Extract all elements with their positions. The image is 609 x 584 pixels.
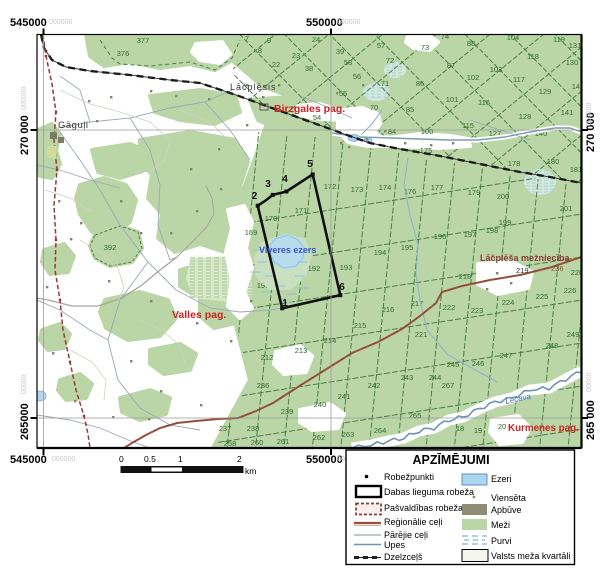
svg-text:8: 8 — [258, 46, 262, 55]
svg-text:377: 377 — [137, 36, 150, 45]
svg-text:Lāčplēsis: Lāčplēsis — [230, 82, 277, 92]
svg-text:216: 216 — [382, 305, 395, 314]
svg-text:71: 71 — [381, 79, 389, 88]
svg-text:241: 241 — [338, 392, 351, 401]
svg-text:Pārējie ceļi: Pārējie ceļi — [384, 530, 428, 540]
svg-text:7: 7 — [245, 34, 249, 43]
svg-text:130: 130 — [566, 58, 579, 67]
svg-text:242: 242 — [368, 381, 381, 390]
svg-text:195: 195 — [401, 243, 414, 252]
svg-text:58: 58 — [344, 58, 352, 67]
svg-text:545000: 545000 — [10, 17, 47, 29]
svg-text:245: 245 — [447, 360, 460, 369]
svg-text:1: 1 — [282, 298, 288, 309]
svg-text:Upes: Upes — [384, 540, 406, 550]
svg-text:Viveres ezers: Viveres ezers — [259, 245, 316, 255]
svg-text:Purvi: Purvi — [491, 536, 512, 546]
svg-text:km: km — [245, 466, 256, 476]
svg-text:177: 177 — [431, 183, 444, 192]
svg-text:100: 100 — [421, 127, 434, 136]
svg-text:180: 180 — [547, 157, 560, 166]
svg-text:115: 115 — [462, 121, 474, 130]
svg-text:545000: 545000 — [10, 454, 47, 466]
svg-text:117: 117 — [513, 75, 525, 84]
svg-text:201: 201 — [560, 204, 573, 213]
svg-text:173: 173 — [351, 185, 364, 194]
svg-text:4: 4 — [282, 174, 288, 185]
svg-text:270 000: 270 000 — [19, 115, 31, 155]
svg-text:000000: 000000 — [21, 87, 28, 110]
svg-text:131: 131 — [569, 41, 582, 50]
svg-text:86: 86 — [416, 79, 424, 88]
svg-text:39: 39 — [336, 47, 344, 56]
svg-text:260: 260 — [251, 438, 264, 447]
svg-text:247: 247 — [500, 351, 513, 360]
svg-text:192: 192 — [308, 264, 321, 273]
svg-text:170: 170 — [265, 214, 278, 223]
svg-text:102: 102 — [467, 73, 480, 82]
svg-text:199: 199 — [499, 218, 512, 227]
svg-text:9: 9 — [267, 36, 271, 45]
svg-text:3: 3 — [265, 179, 271, 190]
svg-text:265: 265 — [409, 411, 422, 420]
svg-text:1: 1 — [178, 454, 183, 464]
svg-text:240: 240 — [314, 400, 327, 409]
svg-text:Ezeri: Ezeri — [491, 474, 512, 484]
svg-text:261: 261 — [277, 437, 290, 446]
svg-text:196: 196 — [434, 232, 447, 241]
svg-text:103: 103 — [490, 65, 503, 74]
svg-text:Dzelzceļš: Dzelzceļš — [384, 552, 423, 562]
svg-text:236: 236 — [551, 264, 564, 273]
svg-text:226: 226 — [564, 286, 577, 295]
svg-text:239: 239 — [281, 407, 294, 416]
svg-text:72: 72 — [386, 56, 394, 65]
svg-text:172: 172 — [324, 182, 337, 191]
svg-text:Robežpunkti: Robežpunkti — [384, 472, 434, 482]
svg-text:Birzgales pag.: Birzgales pag. — [274, 103, 345, 115]
svg-text:258: 258 — [224, 439, 237, 448]
svg-text:Lāčplēša mežniecība: Lāčplēša mežniecība — [480, 253, 571, 263]
svg-text:376: 376 — [117, 49, 130, 58]
svg-text:000000: 000000 — [49, 19, 72, 26]
svg-text:6: 6 — [339, 282, 345, 293]
svg-text:Valsts meža kvartāli: Valsts meža kvartāli — [491, 551, 570, 561]
svg-text:246: 246 — [472, 359, 485, 368]
svg-text:APZĪMĒJUMI: APZĪMĒJUMI — [412, 453, 489, 467]
svg-text:212: 212 — [261, 353, 274, 362]
svg-text:19: 19 — [474, 426, 482, 435]
svg-text:24: 24 — [312, 35, 320, 44]
svg-text:Reģionālie ceļi: Reģionālie ceļi — [384, 517, 443, 527]
svg-text:214: 214 — [324, 336, 337, 345]
svg-text:171: 171 — [295, 206, 308, 215]
svg-text:23: 23 — [292, 51, 300, 60]
svg-text:221: 221 — [415, 330, 428, 339]
svg-text:56: 56 — [353, 72, 361, 81]
svg-text:265 000: 265 000 — [585, 400, 597, 440]
svg-text:219: 219 — [516, 266, 529, 275]
svg-text:Kurmenes pag.: Kurmenes pag. — [508, 423, 579, 434]
svg-text:267: 267 — [442, 381, 455, 390]
svg-text:141: 141 — [561, 108, 574, 117]
svg-text:197: 197 — [464, 230, 477, 239]
svg-text:198: 198 — [486, 226, 499, 235]
svg-text:000000: 000000 — [52, 456, 75, 463]
svg-text:237: 237 — [219, 424, 232, 433]
svg-text:73: 73 — [421, 43, 429, 52]
svg-text:116: 116 — [478, 98, 490, 107]
svg-text:2: 2 — [252, 191, 258, 202]
svg-text:00000: 00000 — [21, 374, 28, 394]
svg-text:236: 236 — [257, 381, 270, 390]
svg-text:Pašvaldības robeža: Pašvaldības robeža — [384, 503, 463, 513]
svg-text:88: 88 — [467, 39, 475, 48]
svg-text:264: 264 — [374, 426, 387, 435]
svg-text:225: 225 — [536, 292, 549, 301]
svg-text:178: 178 — [508, 159, 521, 168]
svg-text:200: 200 — [497, 192, 510, 201]
svg-text:129: 129 — [539, 87, 552, 96]
svg-text:000000: 000000 — [337, 19, 360, 26]
svg-text:218: 218 — [459, 272, 472, 281]
svg-text:244: 244 — [429, 373, 442, 382]
svg-text:238: 238 — [247, 424, 260, 433]
svg-text:Meži: Meži — [491, 520, 510, 530]
svg-text:00000: 00000 — [586, 372, 593, 392]
svg-text:87: 87 — [447, 61, 455, 70]
svg-text:224: 224 — [502, 298, 515, 307]
svg-text:213: 213 — [295, 346, 308, 355]
svg-text:243: 243 — [401, 373, 414, 382]
svg-text:Gāguļi: Gāguļi — [58, 120, 88, 131]
svg-text:248: 248 — [546, 341, 559, 350]
svg-text:38: 38 — [305, 64, 313, 73]
svg-text:193: 193 — [340, 263, 353, 272]
svg-text:118: 118 — [527, 52, 539, 61]
svg-text:70: 70 — [370, 103, 378, 112]
svg-text:0: 0 — [119, 454, 124, 464]
svg-text:Viensēta: Viensēta — [491, 493, 526, 503]
svg-text:181: 181 — [570, 165, 583, 174]
svg-text:101: 101 — [446, 95, 459, 104]
svg-text:249: 249 — [567, 330, 580, 339]
svg-text:392: 392 — [104, 243, 117, 252]
svg-text:Apbūve: Apbūve — [491, 505, 522, 515]
svg-text:222: 222 — [443, 303, 456, 312]
svg-text:0.5: 0.5 — [144, 454, 156, 464]
svg-text:128: 128 — [519, 112, 532, 121]
svg-text:20: 20 — [498, 422, 506, 431]
svg-text:85: 85 — [406, 105, 414, 114]
svg-text:215: 215 — [354, 321, 367, 330]
svg-text:57: 57 — [377, 41, 385, 50]
svg-text:119: 119 — [553, 35, 565, 44]
svg-text:Dabas lieguma robeža: Dabas lieguma robeža — [384, 487, 474, 497]
svg-text:84: 84 — [388, 127, 396, 136]
svg-text:194: 194 — [374, 248, 387, 257]
svg-text:55: 55 — [339, 89, 347, 98]
svg-text:18: 18 — [456, 424, 464, 433]
svg-text:263: 263 — [342, 430, 355, 439]
svg-text:22: 22 — [272, 60, 280, 69]
svg-text:179: 179 — [468, 188, 481, 197]
svg-text:262: 262 — [313, 433, 326, 442]
svg-text:000000: 000000 — [586, 103, 593, 126]
svg-text:169: 169 — [245, 228, 258, 237]
svg-text:Valles pag.: Valles pag. — [172, 309, 226, 321]
svg-text:265000: 265000 — [19, 403, 31, 440]
svg-text:174: 174 — [379, 183, 392, 192]
svg-text:223: 223 — [471, 306, 484, 315]
svg-text:2: 2 — [237, 454, 242, 464]
svg-text:5: 5 — [307, 159, 313, 170]
